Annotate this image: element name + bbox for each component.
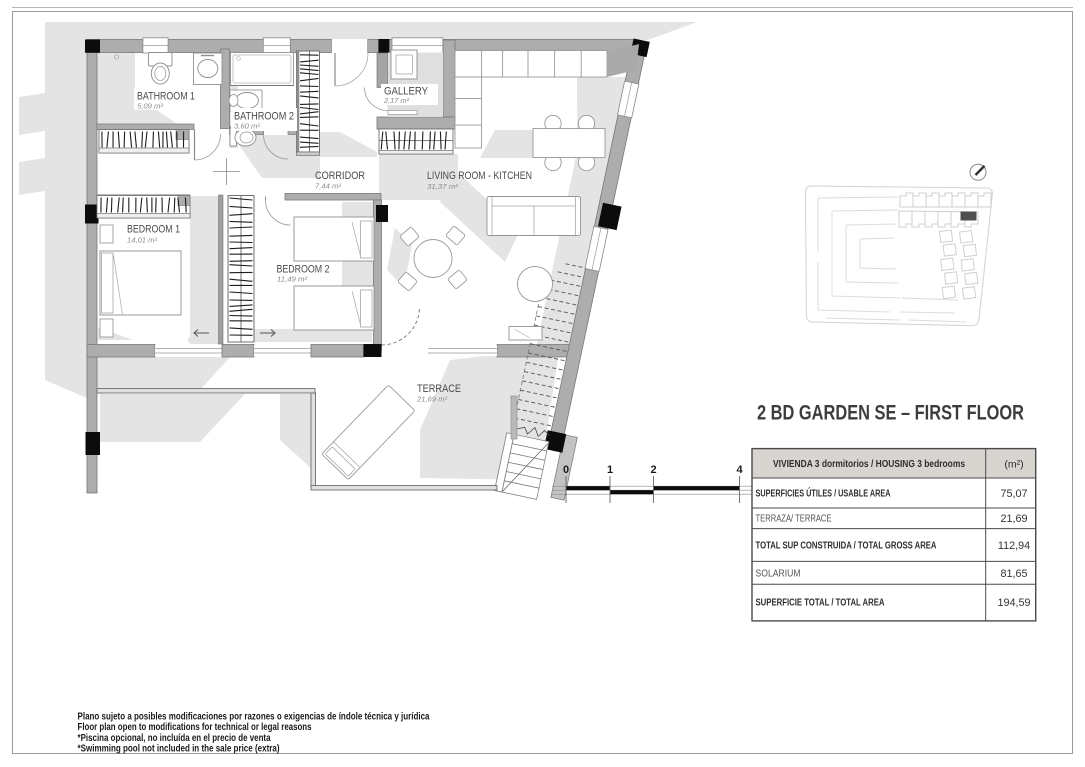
svg-text:*Piscina opcional, no incluída: *Piscina opcional, no incluída en el pre… — [78, 733, 271, 744]
svg-text:3,60 m²: 3,60 m² — [234, 122, 261, 131]
svg-text:2,17 m²: 2,17 m² — [383, 96, 409, 105]
svg-text:TERRACE: TERRACE — [417, 383, 461, 395]
svg-text:31,37 m²: 31,37 m² — [427, 182, 459, 191]
svg-text:BEDROOM 1: BEDROOM 1 — [127, 224, 180, 236]
svg-text:2 BD GARDEN SE – FIRST FLOOR: 2 BD GARDEN SE – FIRST FLOOR — [757, 402, 1024, 425]
svg-text:TERRAZA/ TERRACE: TERRAZA/ TERRACE — [756, 514, 832, 525]
svg-text:21,69 m²: 21,69 m² — [416, 395, 448, 404]
svg-text:TOTAL SUP CONSTRUIDA / TOTAL G: TOTAL SUP CONSTRUIDA / TOTAL GROSS AREA — [756, 541, 937, 552]
svg-text:194,59: 194,59 — [997, 597, 1030, 609]
svg-text:LIVING ROOM - KITCHEN: LIVING ROOM - KITCHEN — [427, 170, 532, 182]
svg-text:Floor plan open to modificatio: Floor plan open to modifications for tec… — [78, 722, 312, 733]
svg-text:112,94: 112,94 — [998, 540, 1030, 552]
svg-text:11,49 m²: 11,49 m² — [277, 275, 308, 284]
svg-text:Plano sujeto a posibles modifi: Plano sujeto a posibles modificaciones p… — [78, 712, 430, 723]
svg-text:0: 0 — [563, 464, 569, 476]
svg-text:21,69: 21,69 — [1000, 513, 1027, 525]
svg-text:81,65: 81,65 — [1000, 568, 1027, 580]
svg-text:SUPERFICIES ÚTILES / USABLE AR: SUPERFICIES ÚTILES / USABLE AREA — [756, 488, 891, 500]
svg-text:*Swimming pool not included in: *Swimming pool not included in the sale … — [78, 744, 280, 755]
svg-text:4: 4 — [736, 464, 743, 476]
svg-text:7,44 m²: 7,44 m² — [315, 182, 342, 191]
svg-text:VIVIENDA 3 dormitorios / HOUSI: VIVIENDA 3 dormitorios / HOUSING 3 bedro… — [773, 459, 965, 470]
svg-text:5,09 m²: 5,09 m² — [137, 102, 164, 111]
svg-text:2: 2 — [650, 464, 656, 476]
svg-text:14,01 m²: 14,01 m² — [127, 236, 157, 245]
svg-text:75,07: 75,07 — [1000, 488, 1027, 500]
svg-text:CORRIDOR: CORRIDOR — [315, 170, 365, 182]
svg-text:SOLARIUM: SOLARIUM — [756, 569, 801, 580]
svg-text:(m²): (m²) — [1004, 459, 1023, 471]
svg-text:SUPERFICIE TOTAL / TOTAL AREA: SUPERFICIE TOTAL / TOTAL AREA — [756, 598, 885, 609]
svg-text:1: 1 — [607, 464, 613, 476]
